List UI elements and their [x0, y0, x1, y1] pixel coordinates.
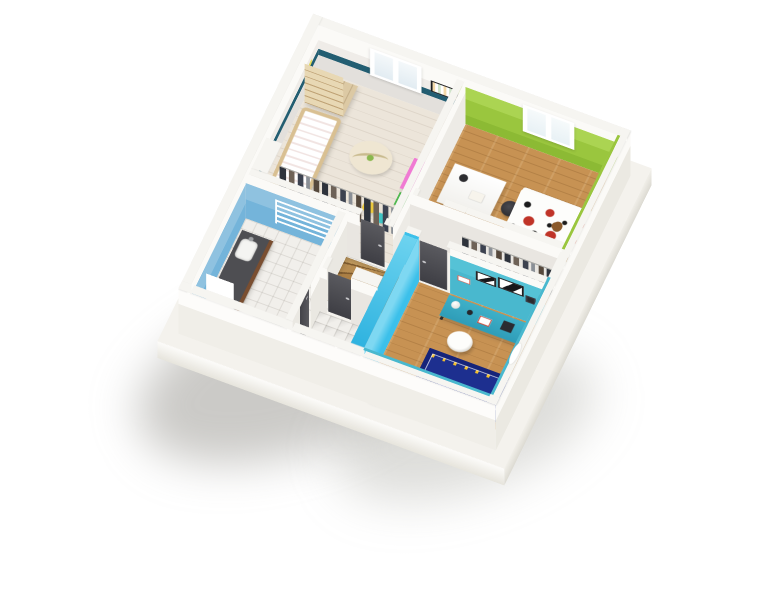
desk-frame-dark: [500, 320, 515, 333]
art-frame-1: [476, 271, 496, 287]
desk-paper: [468, 190, 485, 203]
nursery-door: [361, 219, 385, 268]
window-pane: [375, 52, 393, 81]
wc-door: [328, 272, 352, 321]
floorplan-render: { "scene": { "title": "3D floor plan — u…: [0, 0, 780, 600]
wc-north-wall-face-a: [320, 266, 327, 314]
window-pane: [551, 117, 569, 146]
desk-lamp: [450, 300, 462, 310]
desk-accessory: [458, 173, 470, 183]
red-poster: [457, 275, 470, 285]
art-frame-2: [498, 277, 524, 297]
desk-card-red: [477, 315, 492, 327]
vanity-sink: [233, 237, 259, 262]
window-pane: [398, 61, 416, 90]
desk-round-item: [466, 309, 474, 316]
floorplan-3d: [178, 59, 630, 451]
window-pane: [527, 108, 545, 137]
